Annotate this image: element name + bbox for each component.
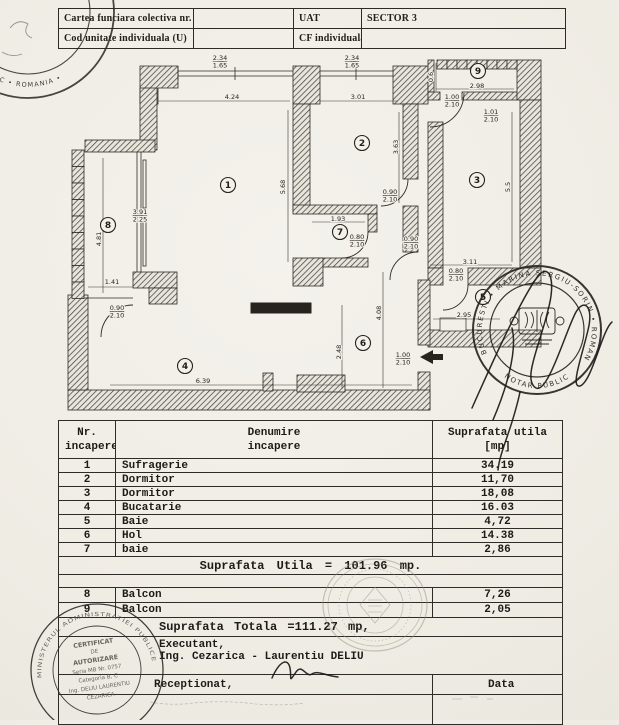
svg-text:8: 8 — [105, 221, 111, 231]
label-cartea-funciara: Cartea funciara colectiva nr. — [59, 9, 194, 29]
row-nr: 8 — [59, 588, 116, 603]
dim-label: 2.341.65 — [345, 54, 359, 70]
room-marker: 6 — [356, 336, 371, 351]
row-area: 34.19 — [433, 459, 563, 473]
row-nr: 3 — [59, 487, 116, 501]
solid-wall-segment — [251, 303, 311, 313]
dim-label: 1.93 — [331, 215, 345, 223]
dim-label: 0.902.10 — [383, 188, 397, 204]
spacer-cell — [59, 575, 563, 588]
dim-label: 1.002.10 — [396, 351, 410, 367]
entrance-arrow-icon — [420, 350, 443, 364]
dim-label: 5.68 — [279, 180, 287, 194]
notary-stamp-right: BUCURESTI • MARINA SERGIU-SORIN • ROMANI… — [0, 0, 601, 394]
row-name: Dormitor — [116, 487, 433, 501]
header-row-1: Cartea funciara colectiva nr. UAT SECTOR… — [59, 9, 566, 29]
room-marker: 2 — [355, 136, 370, 151]
table-row: 5Baie4,72 — [59, 515, 563, 529]
table-row: 8Balcon7,26 — [59, 588, 563, 603]
windows — [84, 67, 393, 298]
dimension-labels: 2.341.652.341.654.243.015.683.630.62.981… — [95, 54, 512, 385]
svg-text:BUCURESTI • MARINA SERGIU-SORI: BUCURESTI • MARINA SERGIU-SORIN • ROMANI… — [0, 0, 598, 363]
table-row: 9Balcon2,05 — [59, 603, 563, 618]
svg-text:NOTAR PUBLIC: NOTAR PUBLIC — [503, 372, 571, 390]
svg-text:2: 2 — [359, 139, 365, 149]
value-uat: SECTOR 3 — [362, 9, 566, 29]
row-area: 16.03 — [433, 501, 563, 515]
row-name: Balcon — [116, 603, 433, 618]
svg-text:5: 5 — [480, 293, 486, 303]
row-name: Hol — [116, 529, 433, 543]
receptionat-row: Receptionat, Data — [59, 675, 563, 695]
scanned-cadastral-document: { "header_table": { "rows": [ {"c1": "Ca… — [0, 0, 619, 720]
dim-label: 3.63 — [392, 140, 400, 154]
table-row: 3Dormitor18,08 — [59, 487, 563, 501]
floor-plan: 2.341.652.341.654.243.015.683.630.62.981… — [68, 54, 541, 410]
table-header-row: Nr.incapere Denumireincapere Suprafata u… — [59, 421, 563, 459]
table-row: 4Bucatarie16.03 — [59, 501, 563, 515]
col-header-suprafata: Suprafata utila[mp] — [433, 421, 563, 459]
bottom-empty-row — [59, 695, 563, 725]
data-label: Data — [433, 675, 563, 695]
dim-label: 0.802.10 — [350, 233, 364, 249]
walls — [68, 60, 541, 410]
bath-niche — [440, 318, 466, 331]
stamp-ring-text: NOTAR PUBLIC • ROMANIA • — [0, 40, 63, 89]
dim-label: 1.012.10 — [484, 108, 498, 124]
row-nr: 4 — [59, 501, 116, 515]
dim-label: 3.11 — [463, 258, 477, 266]
receptionat-label: Receptionat, — [59, 675, 433, 695]
dim-label: 4.81 — [95, 232, 103, 246]
row-nr: 5 — [59, 515, 116, 529]
room-marker: 5 — [476, 290, 491, 305]
value-cod-unitate — [194, 29, 294, 49]
room-marker: 3 — [470, 173, 485, 188]
executant-cell: Executant, Ing. Cezarica - Laurentiu DEL… — [59, 637, 563, 675]
row-nr: 1 — [59, 459, 116, 473]
room-marker: 4 — [178, 359, 193, 374]
row-name: Baie — [116, 515, 433, 529]
col-header-denumire: Denumireincapere — [116, 421, 433, 459]
executant-row: Executant, Ing. Cezarica - Laurentiu DEL… — [59, 637, 563, 675]
header-row-2: Cod unitate individuala (U) CF individua… — [59, 29, 566, 49]
dim-label: 0.902.10 — [110, 304, 124, 320]
room-marker: 9 — [471, 64, 486, 79]
row-nr: 7 — [59, 543, 116, 557]
subtotal-row: Suprafata Utila = 101.96 mp. — [59, 557, 563, 575]
row-area: 7,26 — [433, 588, 563, 603]
table-row: 1Sufragerie34.19 — [59, 459, 563, 473]
dim-label: 4.24 — [225, 93, 239, 101]
dim-label: 4.08 — [375, 306, 383, 320]
row-area: 2,86 — [433, 543, 563, 557]
row-nr: 6 — [59, 529, 116, 543]
row-area: 4,72 — [433, 515, 563, 529]
svg-text:6: 6 — [360, 339, 366, 349]
row-name: Sufragerie — [116, 459, 433, 473]
stamp-emblem — [510, 308, 564, 344]
dim-label: 0.802.10 — [449, 267, 463, 283]
door-arcs — [101, 93, 468, 337]
dim-label: 0.902.10 — [404, 235, 418, 251]
value-cf-individuala — [362, 29, 566, 49]
svg-text:7: 7 — [337, 228, 343, 238]
room-marker: 1 — [221, 178, 236, 193]
svg-text:4: 4 — [182, 362, 188, 372]
dim-label: 3.912.25 — [133, 208, 147, 224]
dim-label: 1.41 — [105, 278, 119, 286]
room-area-table: Nr.incapere Denumireincapere Suprafata u… — [58, 420, 563, 725]
stamp-ring-top-text: BUCURESTI • MARINA SERGIU-SORIN • ROMANI… — [0, 0, 598, 363]
col-header-nr: Nr.incapere — [59, 421, 116, 459]
row-nr: 2 — [59, 473, 116, 487]
room-marker: 8 — [101, 218, 116, 233]
dim-label: 6.39 — [196, 377, 210, 385]
label-cf-individuala: CF individuala — [294, 29, 362, 49]
table-row: 2Dormitor11,70 — [59, 473, 563, 487]
svg-text:3: 3 — [474, 176, 480, 186]
row-area: 11,70 — [433, 473, 563, 487]
row-name: Bucatarie — [116, 501, 433, 515]
row-area: 2,05 — [433, 603, 563, 618]
total-text: Suprafata Totala =111.27 mp, — [59, 618, 563, 637]
row-name: baie — [116, 543, 433, 557]
table-row: 7baie2,86 — [59, 543, 563, 557]
executant-label: Executant, — [159, 639, 225, 651]
row-name: Balcon — [116, 588, 433, 603]
header-table: Cartea funciara colectiva nr. UAT SECTOR… — [58, 8, 566, 49]
dim-label: 1.002.10 — [445, 93, 459, 109]
dim-label: 5.5 — [504, 182, 512, 192]
label-cod-unitate: Cod unitate individuala (U) — [59, 29, 194, 49]
dim-label: 3.01 — [351, 93, 365, 101]
svg-text:1: 1 — [225, 181, 231, 191]
dim-label: 2.48 — [335, 345, 343, 359]
total-row: Suprafata Totala =111.27 mp, — [59, 618, 563, 637]
row-area: 18,08 — [433, 487, 563, 501]
row-name: Dormitor — [116, 473, 433, 487]
dim-label: 2.341.65 — [213, 54, 227, 70]
table-row: 6Hol14.38 — [59, 529, 563, 543]
stamp-ring-bottom-text: NOTAR PUBLIC — [503, 372, 571, 390]
balcony-railings — [72, 60, 517, 299]
row-nr: 9 — [59, 603, 116, 618]
room-marker: 7 — [333, 225, 348, 240]
executant-name: Ing. Cezarica - Laurentiu DELIU — [159, 651, 364, 663]
svg-text:9: 9 — [475, 67, 481, 77]
dim-label: 2.98 — [470, 82, 484, 90]
spacer-row — [59, 575, 563, 588]
receptionat-signature-area — [59, 695, 433, 725]
subtotal-text: Suprafata Utila = 101.96 mp. — [59, 557, 563, 575]
room-markers: 123456789 — [101, 64, 491, 374]
dim-label: 2.95 — [457, 311, 471, 319]
svg-text:NOTAR PUBLIC • ROMANIA •: NOTAR PUBLIC • ROMANIA • — [0, 40, 63, 89]
row-area: 14.38 — [433, 529, 563, 543]
dim-label: 0.6 — [427, 72, 435, 82]
value-cartea-funciara — [194, 9, 294, 29]
label-uat: UAT — [294, 9, 362, 29]
data-value-area — [433, 695, 563, 725]
dimension-lines — [88, 63, 514, 388]
